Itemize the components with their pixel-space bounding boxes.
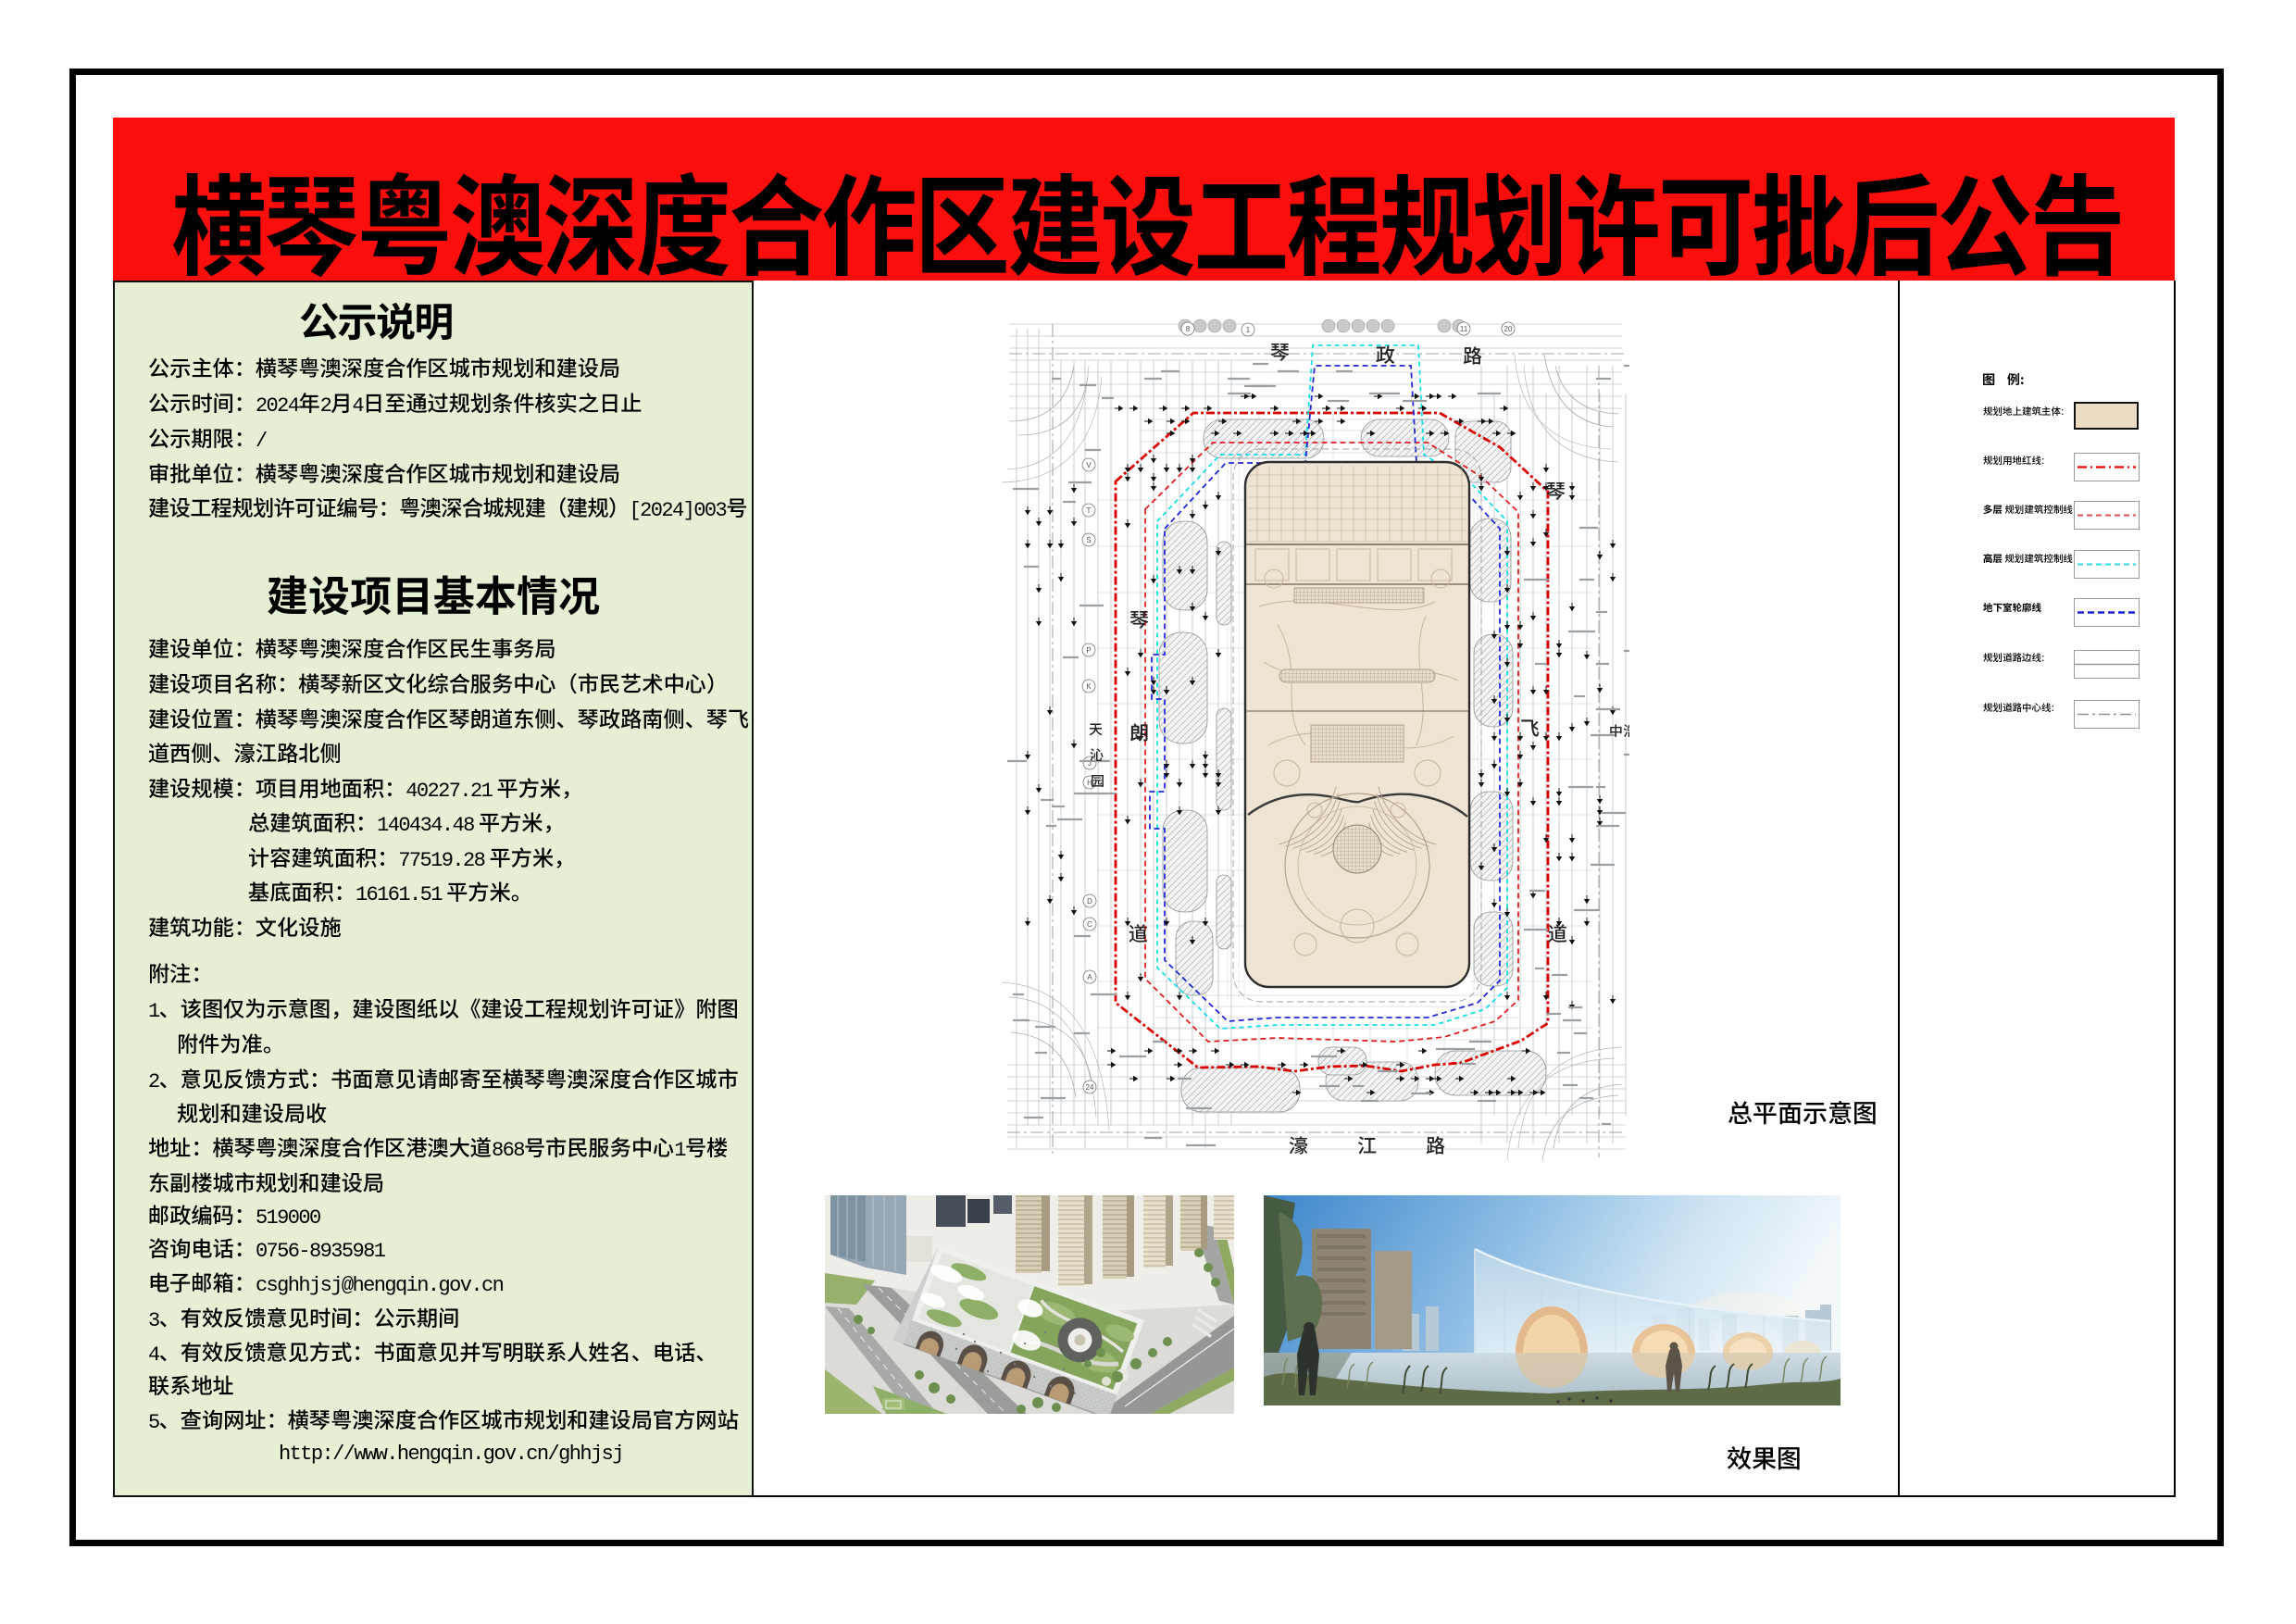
svg-text:飞: 飞 — [1520, 714, 1540, 742]
svg-text:11: 11 — [1460, 325, 1468, 333]
svg-text:8: 8 — [1186, 325, 1191, 333]
svg-text:朗: 朗 — [1129, 718, 1149, 746]
svg-text:A: A — [1087, 973, 1092, 981]
svg-text:沁: 沁 — [1090, 745, 1104, 765]
svg-text:P: P — [1086, 646, 1091, 655]
svg-text:濠: 濠 — [1289, 1131, 1308, 1159]
svg-text:T: T — [1087, 506, 1092, 515]
svg-text:道: 道 — [1548, 919, 1567, 947]
svg-text:20: 20 — [1504, 325, 1513, 333]
svg-text:S: S — [1086, 536, 1091, 544]
svg-text:政: 政 — [1376, 341, 1395, 369]
svg-text:路: 路 — [1426, 1131, 1445, 1159]
svg-text:K: K — [1086, 682, 1092, 691]
svg-text:琴: 琴 — [1546, 477, 1566, 505]
svg-text:路: 路 — [1463, 342, 1482, 369]
svg-text:V: V — [1086, 461, 1092, 469]
svg-text:D: D — [1087, 897, 1092, 906]
svg-text:中浩: 中浩 — [1609, 721, 1629, 741]
svg-text:江: 江 — [1357, 1131, 1377, 1159]
svg-text:园: 园 — [1091, 771, 1104, 791]
svg-text:24: 24 — [1086, 1083, 1094, 1092]
svg-text:琴: 琴 — [1129, 606, 1149, 633]
svg-text:C: C — [1087, 920, 1092, 929]
svg-text:琴: 琴 — [1270, 338, 1290, 366]
svg-text:1: 1 — [1246, 326, 1251, 334]
svg-text:道: 道 — [1129, 919, 1148, 947]
svg-text:天: 天 — [1089, 719, 1103, 739]
